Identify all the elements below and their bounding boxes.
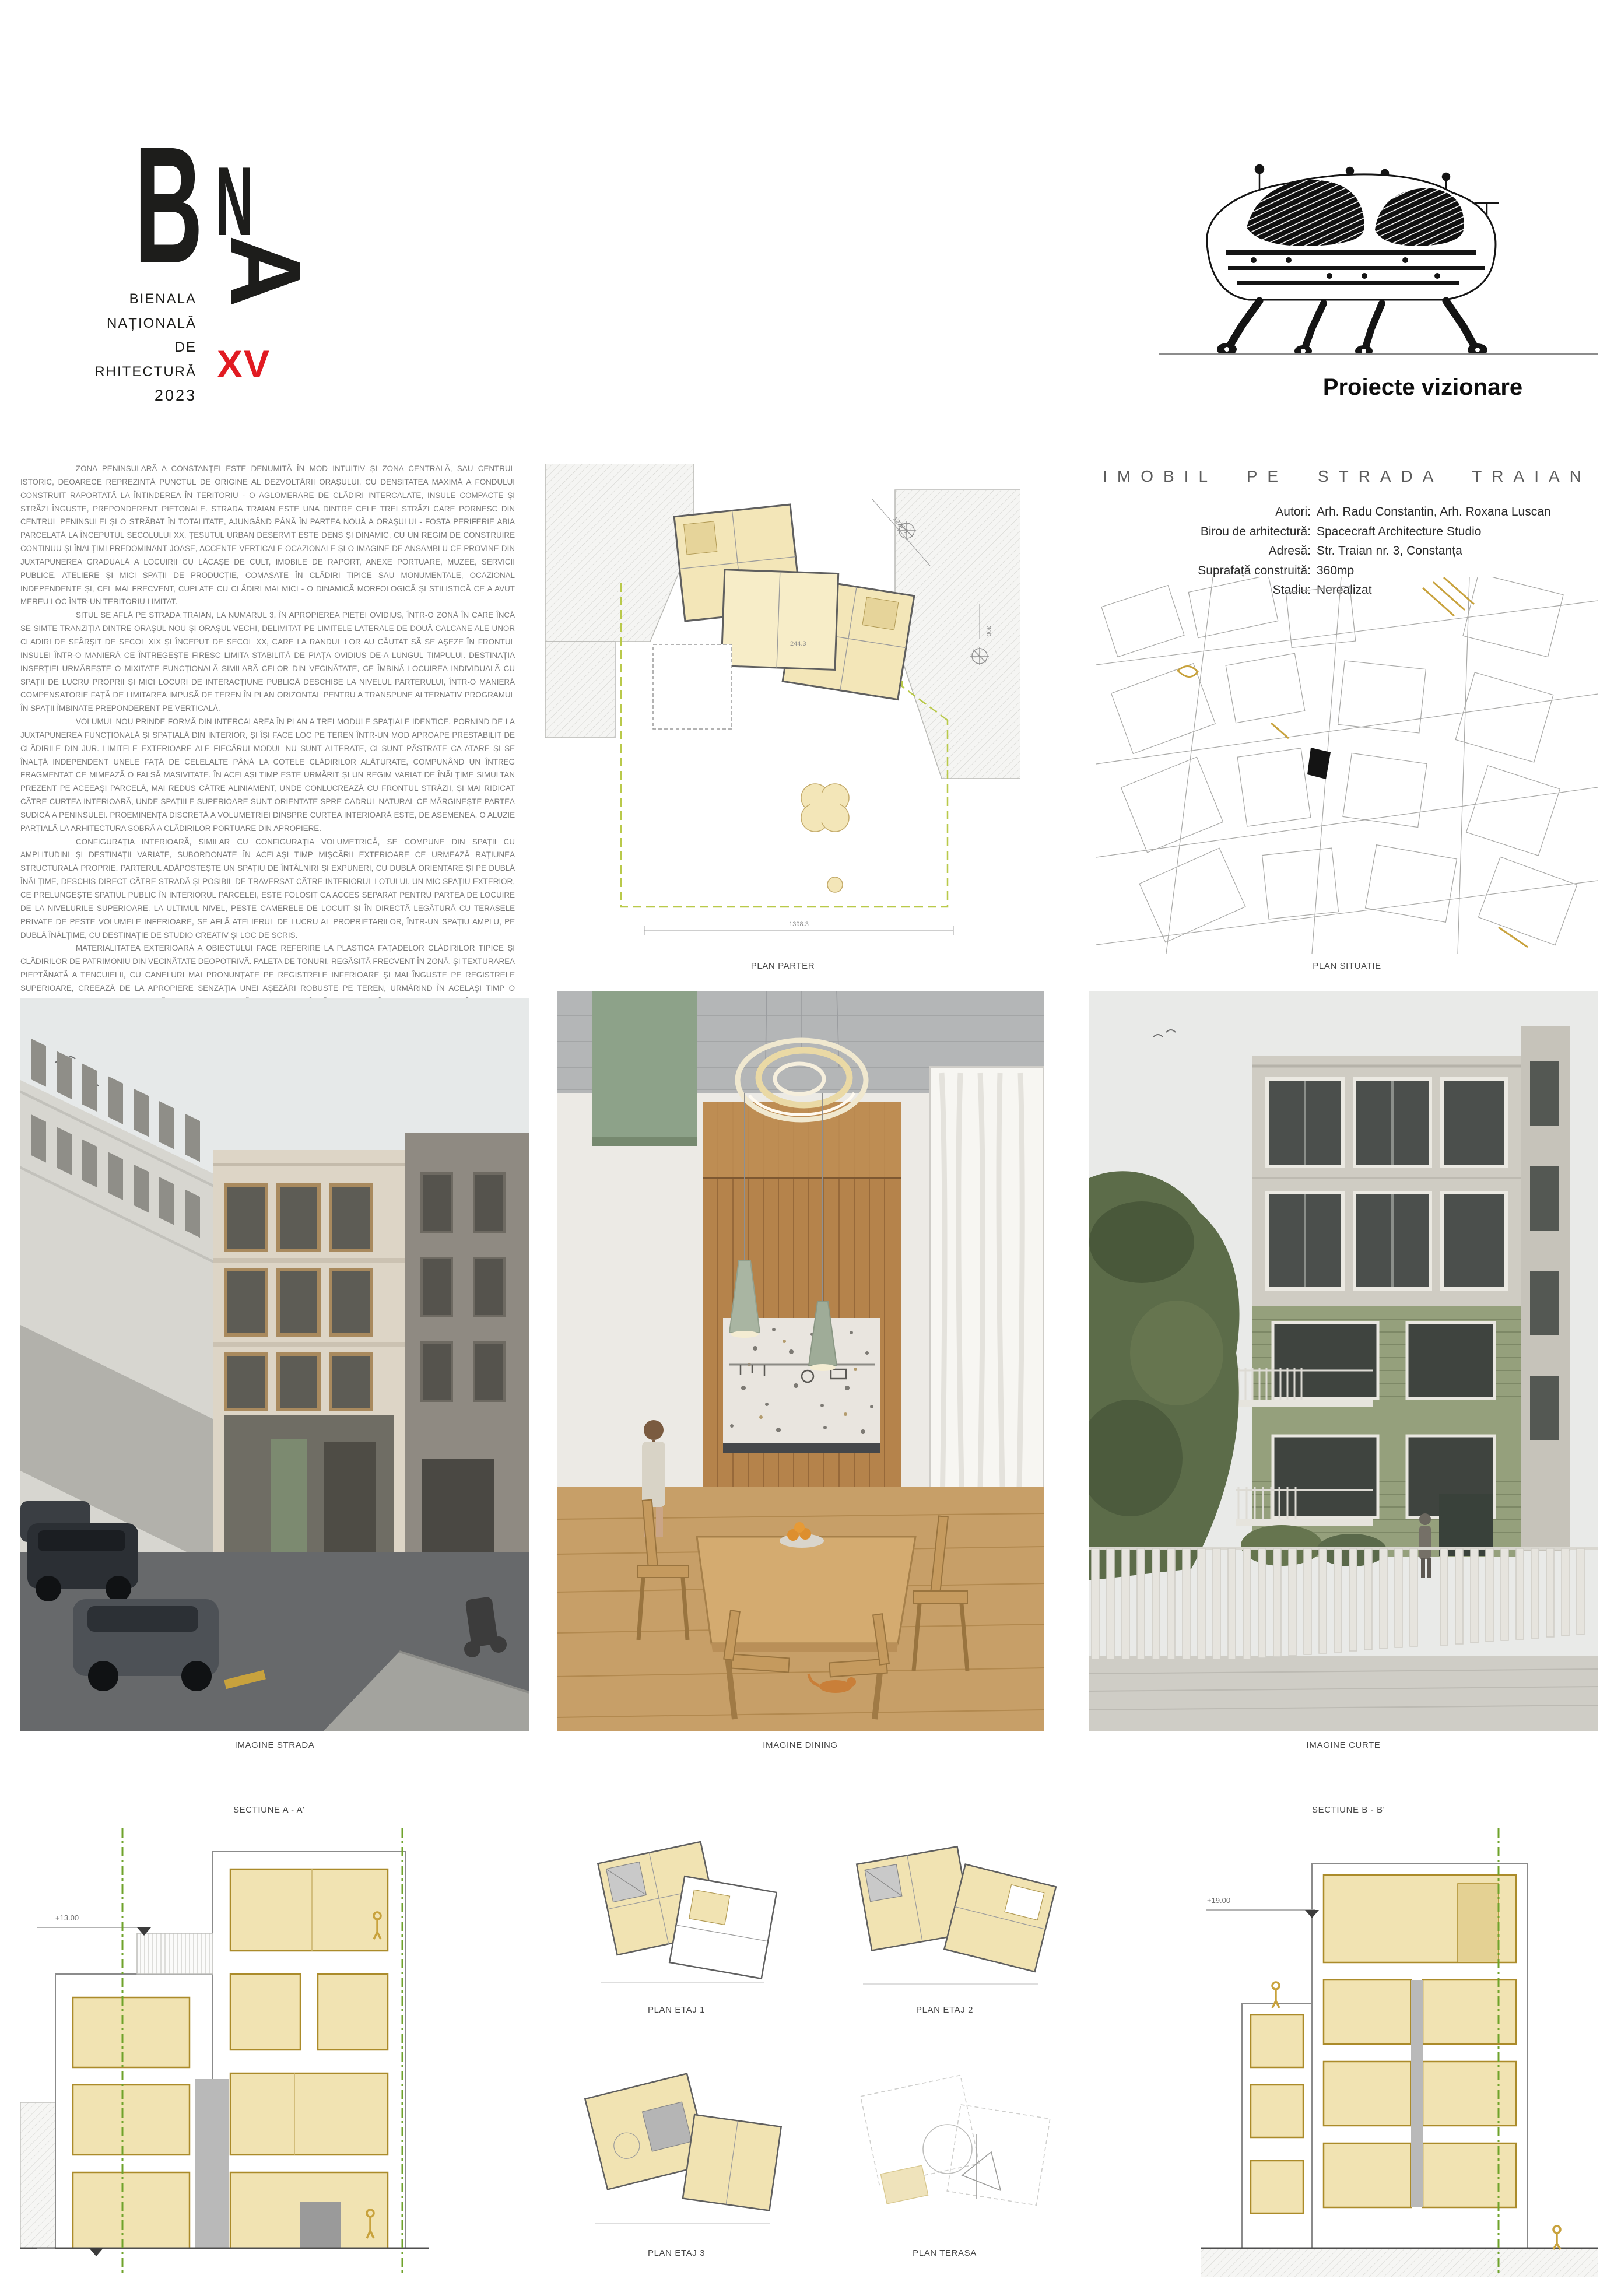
caption-plan-etaj-2: PLAN ETAJ 2 (828, 2005, 1061, 2015)
project-title: IMOBIL PE STRADA TRAIAN (1096, 467, 1598, 486)
logo-letter-b: B (134, 140, 203, 298)
credit-value: Arh. Radu Constantin, Arh. Roxana Luscan (1317, 502, 1551, 522)
render-courtyard-view (1089, 991, 1598, 1731)
credit-value: Spacecraft Architecture Studio (1317, 522, 1482, 542)
caption-imagine-dining: IMAGINE DINING (557, 1740, 1044, 1750)
section-b-block: SECTIUNE B - B' +19.00 (1201, 1805, 1598, 2289)
dimension-label: 300 (985, 626, 992, 636)
caption-plan-etaj-3: PLAN ETAJ 3 (560, 2248, 793, 2258)
section-a-block: SECTIUNE A - A' +13.00 +0.00 (20, 1805, 429, 2289)
caption-plan-etaj-1: PLAN ETAJ 1 (560, 2005, 793, 2015)
plan-situatie-drawing (1096, 577, 1598, 954)
caption-sectiune-a: SECTIUNE A - A' (233, 1805, 350, 1815)
caption-plan-parter: PLAN PARTER (545, 961, 1020, 971)
caption-plan-terasa: PLAN TERASA (828, 2248, 1061, 2258)
caption-imagine-strada: IMAGINE STRADA (20, 1740, 529, 1750)
credit-label: Birou de arhitectură: (1096, 522, 1311, 542)
plan-etaj-2-drawing (828, 1825, 1061, 1994)
logo-line-de: DE (175, 339, 197, 355)
credit-label: Adresă: (1096, 541, 1311, 561)
render-dining-interior (557, 991, 1044, 1731)
section-a-drawing (20, 1828, 429, 2283)
dimension-label: 1398.3 (789, 921, 809, 928)
bna-logo-graphic: B N A BIENALA NAȚIONALĂ DE ARHITECTURĂ X… (93, 140, 315, 414)
credit-label: Autori: (1096, 502, 1311, 522)
dimension-label: 244.3 (790, 640, 806, 647)
category-label: Proiecte vizionare (1271, 374, 1574, 401)
logo-line-nationala: NAȚIONALĂ (107, 316, 197, 331)
caption-imagine-curte: IMAGINE CURTE (1089, 1740, 1598, 1750)
project-description: ZONA PENINSULARĂ A CONSTANȚEI ESTE DENUM… (20, 462, 515, 1022)
bna-logo: B N A BIENALA NAȚIONALĂ DE ARHITECTURĂ X… (93, 140, 315, 414)
render-street-view (20, 998, 529, 1731)
essay-paragraph: SITUL SE AFLĂ PE STRADA TRAIAN, LA NUMAR… (20, 609, 515, 716)
credit-value: Str. Traian nr. 3, Constanța (1317, 541, 1462, 561)
walking-machine-illustration (1172, 156, 1522, 355)
logo-line-bienala: BIENALA (129, 291, 197, 307)
plan-etaj-1-drawing (560, 1825, 793, 1994)
plan-etaj-3-block: PLAN ETAJ 3 (560, 2053, 793, 2269)
plan-parter-drawing: 1398.3 1227.3 300 244.3 (545, 464, 1020, 954)
credit-row: Autori: Arh. Radu Constantin, Arh. Roxan… (1096, 502, 1598, 522)
caption-plan-situatie: PLAN SITUATIE (1096, 961, 1598, 971)
logo-year: 2023 (155, 387, 197, 404)
plan-etaj-2-block: PLAN ETAJ 2 (828, 1825, 1061, 2024)
category-divider-line (1159, 353, 1598, 355)
logo-edition-xv: XV (217, 342, 271, 385)
plan-terasa-drawing (828, 2053, 1061, 2234)
section-b-drawing (1201, 1828, 1598, 2283)
plan-terasa-block: PLAN TERASA (828, 2053, 1061, 2269)
plan-etaj-1-block: PLAN ETAJ 1 (560, 1825, 793, 2024)
credit-row: Adresă: Str. Traian nr. 3, Constanța (1096, 541, 1598, 561)
credit-row: Birou de arhitectură: Spacecraft Archite… (1096, 522, 1598, 542)
essay-paragraph: ZONA PENINSULARĂ A CONSTANȚEI ESTE DENUM… (20, 462, 515, 609)
plan-etaj-3-drawing (560, 2053, 793, 2234)
competition-board: B N A BIENALA NAȚIONALĂ DE ARHITECTURĂ X… (0, 0, 1607, 2296)
logo-letter-a: A (209, 235, 315, 307)
logo-line-arhitectura: ARHITECTURĂ (93, 364, 197, 380)
essay-paragraph: CONFIGURAȚIA INTERIOARĂ, SIMILAR CU CONF… (20, 836, 515, 942)
caption-sectiune-b: SECTIUNE B - B' (1312, 1805, 1429, 1815)
essay-paragraph: VOLUMUL NOU PRINDE FORMĂ DIN INTERCALARE… (20, 716, 515, 836)
